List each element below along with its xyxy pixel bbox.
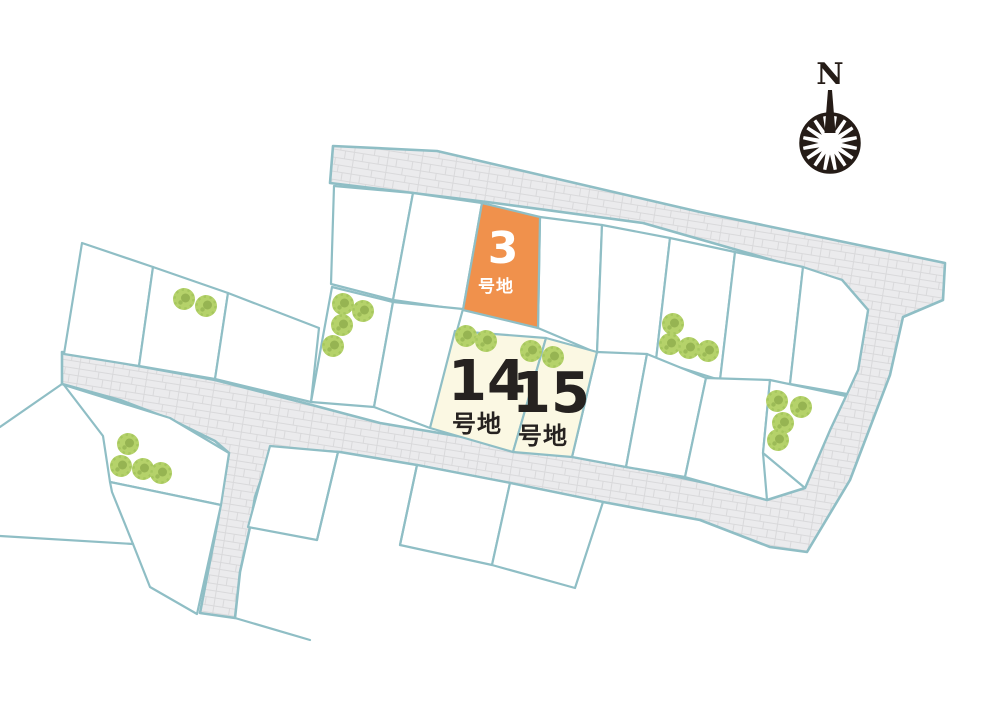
boundary-line [0, 384, 62, 427]
tree-icon [455, 325, 477, 347]
tree-icon [173, 288, 195, 310]
lot-parcel [400, 465, 510, 565]
tree-icon [331, 314, 353, 336]
tree-icon [475, 330, 497, 352]
boundary-line [0, 536, 133, 544]
lot-parcel [492, 483, 603, 588]
lot-3-suffix: 号地 [478, 276, 514, 297]
lot-parcel [64, 243, 153, 366]
lot-parcel [720, 252, 803, 384]
lot-15-suffix: 号地 [518, 422, 568, 450]
tree-icon [117, 433, 139, 455]
tree-icon [790, 396, 812, 418]
lot-15-number: 15 [512, 361, 590, 426]
tree-icon [110, 455, 132, 477]
tree-icon [195, 295, 217, 317]
tree-icon [697, 340, 719, 362]
lot-parcel [139, 267, 228, 379]
tree-icon [352, 300, 374, 322]
lot-14-suffix: 号地 [452, 410, 502, 438]
compass-rose-icon: N [801, 57, 859, 172]
compass-north-label: N [816, 57, 843, 92]
tree-icon [678, 337, 700, 359]
compass-needle [825, 90, 836, 133]
site-plan-map: 3 号地 14 号地 15 号地 N [0, 0, 983, 724]
lot-3-number: 3 [488, 223, 519, 274]
tree-icon [662, 313, 684, 335]
tree-icon [150, 462, 172, 484]
boundary-line [235, 618, 310, 640]
tree-icon [332, 293, 354, 315]
tree-icon [542, 346, 564, 368]
lot-parcel [538, 217, 602, 353]
tree-icon [520, 340, 542, 362]
tree-icon [322, 335, 344, 357]
tree-icon [766, 390, 788, 412]
tree-icon [767, 429, 789, 451]
tree-icon [659, 333, 681, 355]
